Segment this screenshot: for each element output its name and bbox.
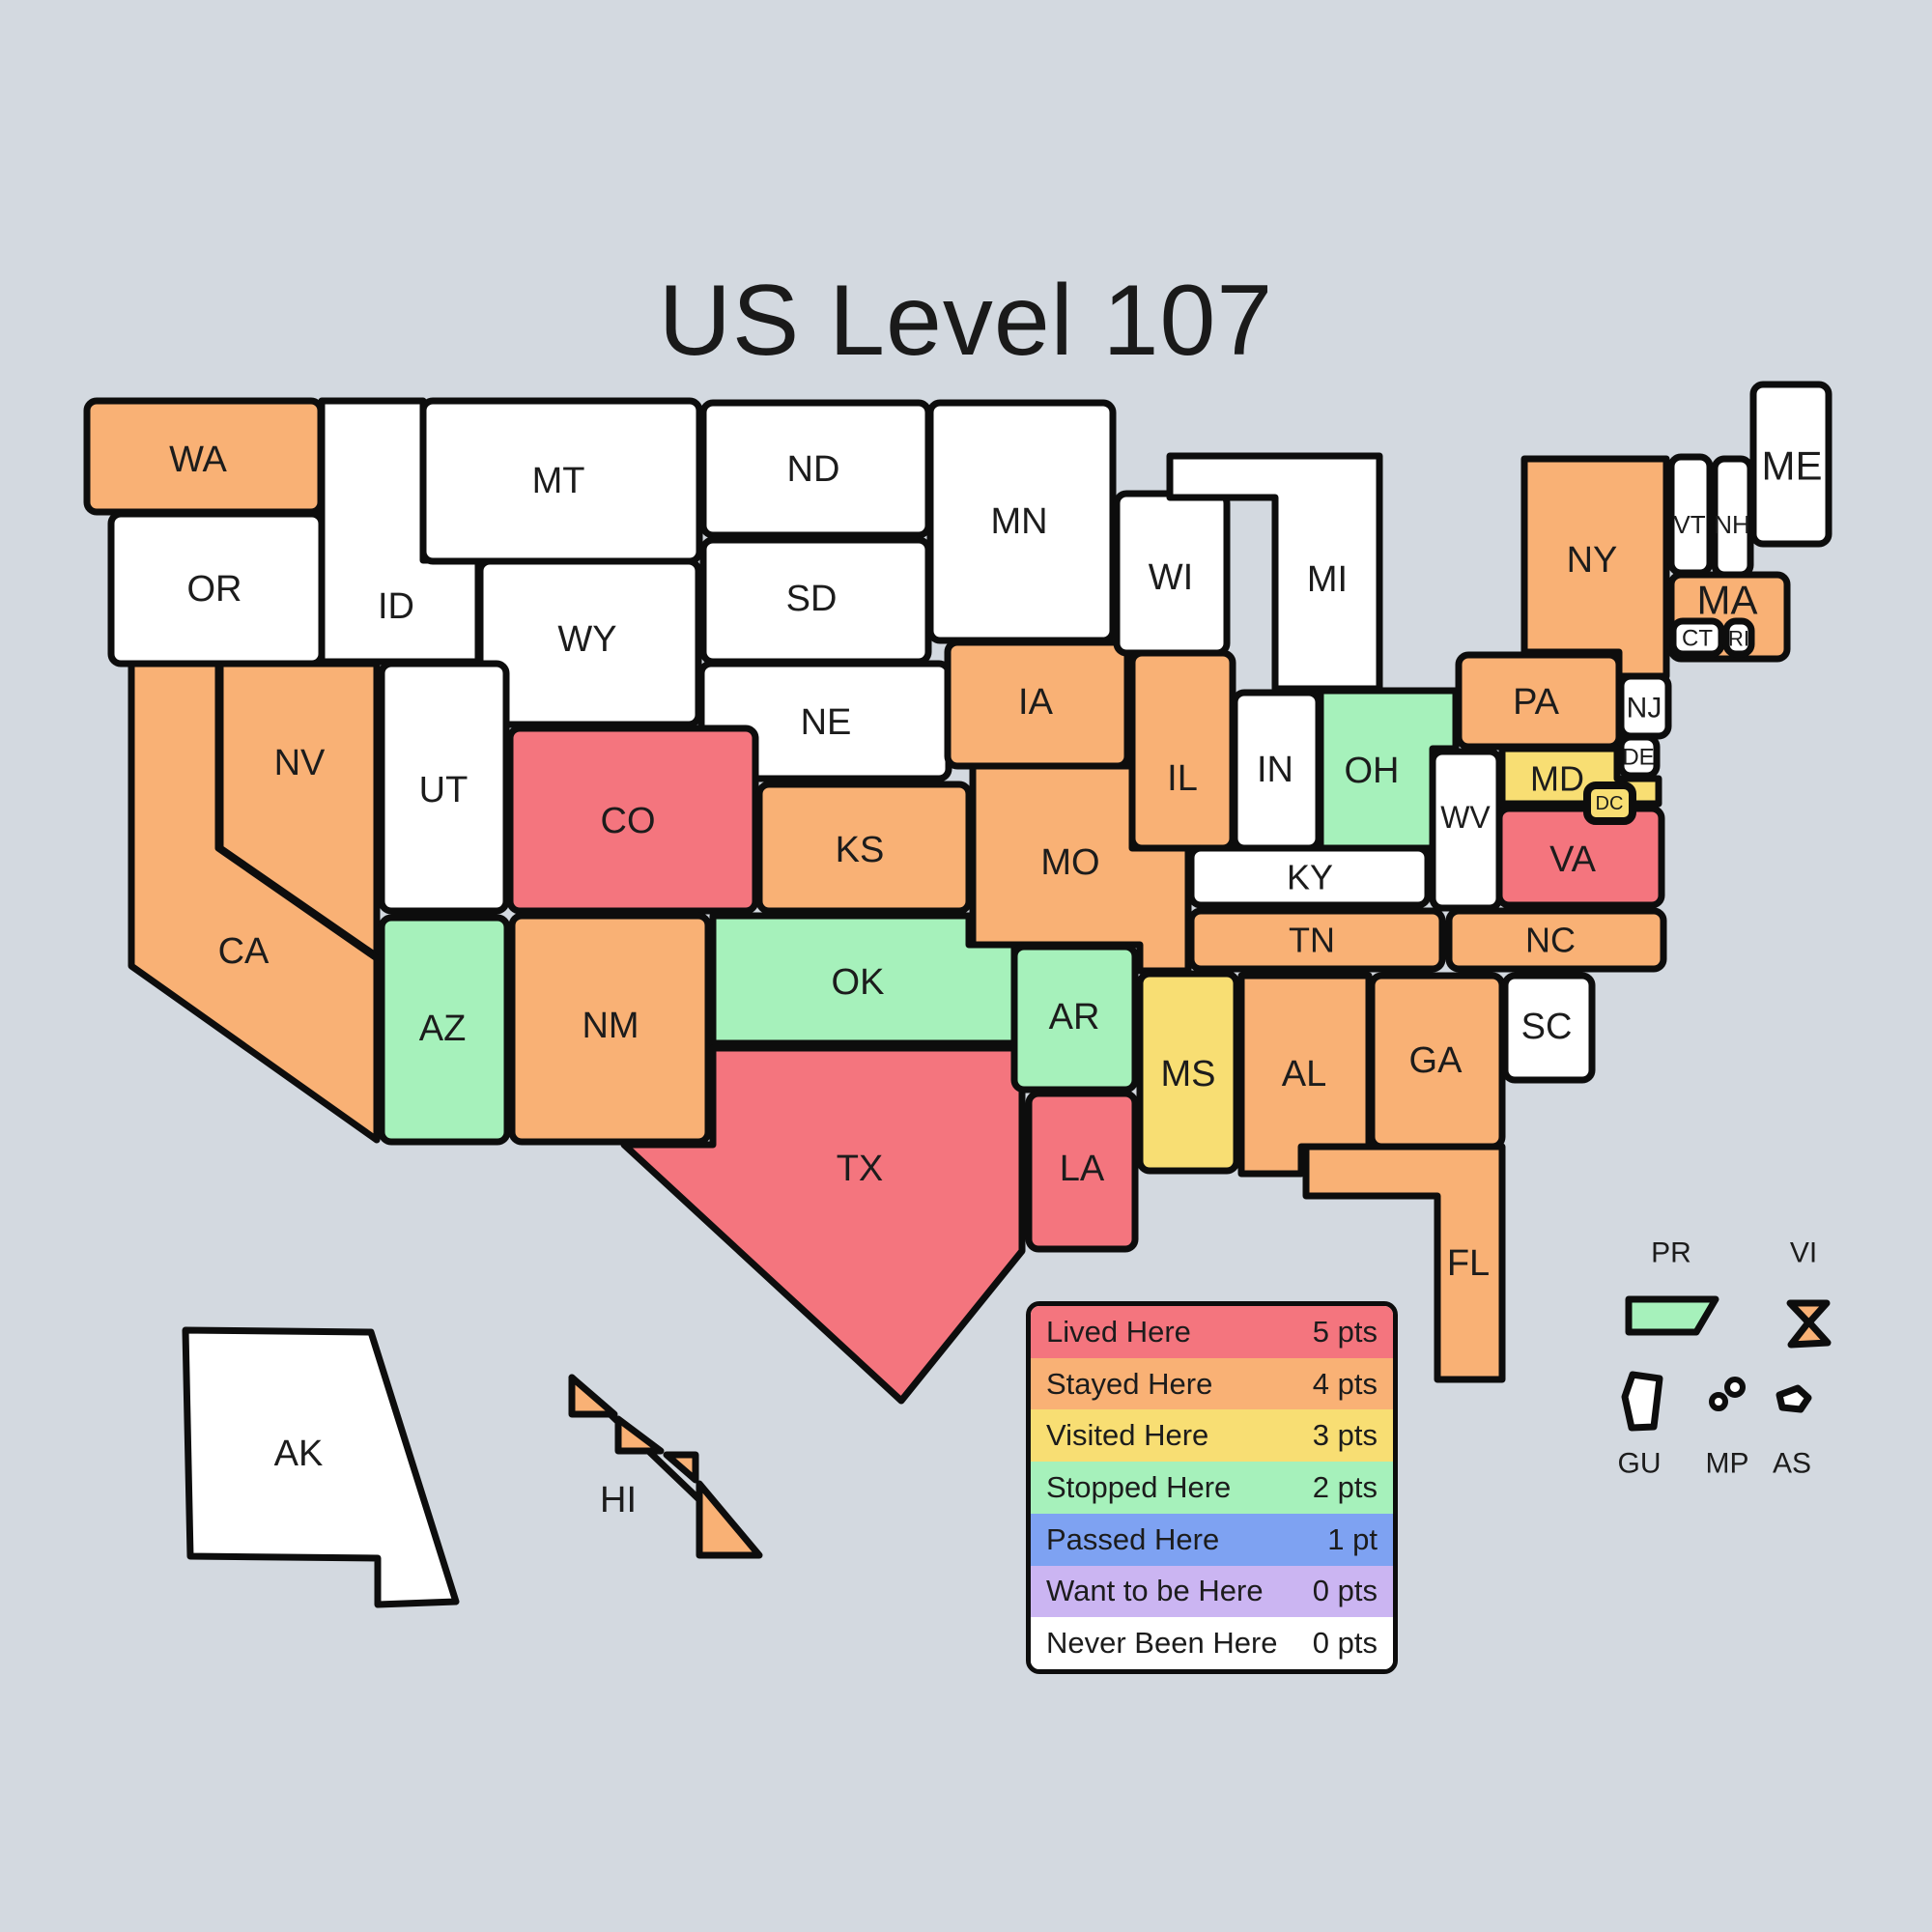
legend-row-lived: Lived Here5 pts (1031, 1306, 1393, 1358)
state-or[interactable] (111, 514, 322, 664)
state-ky[interactable] (1191, 848, 1428, 905)
legend-points: 4 pts (1313, 1367, 1378, 1402)
legend-label: Want to be Here (1046, 1574, 1264, 1608)
legend: Lived Here5 ptsStayed Here4 ptsVisited H… (1026, 1301, 1398, 1674)
legend-points: 0 pts (1313, 1574, 1378, 1608)
state-hi-label: HI (600, 1480, 637, 1520)
state-me[interactable] (1753, 384, 1829, 544)
state-hi[interactable] (572, 1378, 759, 1555)
state-tn[interactable] (1191, 911, 1442, 969)
legend-points: 5 pts (1313, 1315, 1378, 1350)
territory-pr-label: PR (1651, 1237, 1691, 1269)
state-il[interactable] (1132, 653, 1233, 848)
legend-points: 2 pts (1313, 1470, 1378, 1505)
territory-gu[interactable] (1625, 1375, 1660, 1428)
state-de[interactable] (1621, 737, 1657, 776)
state-nc[interactable] (1449, 911, 1663, 969)
legend-points: 3 pts (1313, 1418, 1378, 1453)
legend-label: Stayed Here (1046, 1367, 1212, 1402)
state-ks[interactable] (759, 784, 969, 911)
state-ia[interactable] (948, 642, 1127, 766)
state-nd[interactable] (703, 403, 928, 535)
legend-row-stayed: Stayed Here4 pts (1031, 1358, 1393, 1410)
legend-points: 1 pt (1327, 1522, 1378, 1557)
territory-mp-label: MP (1706, 1448, 1749, 1480)
legend-row-stopped: Stopped Here2 pts (1031, 1462, 1393, 1514)
state-va[interactable] (1499, 809, 1662, 905)
state-sd[interactable] (703, 540, 928, 662)
territory-vi-label: VI (1790, 1237, 1817, 1269)
page-title: US Level 107 (0, 270, 1932, 371)
legend-label: Lived Here (1046, 1315, 1191, 1350)
territory-vi[interactable] (1790, 1303, 1828, 1345)
legend-label: Passed Here (1046, 1522, 1219, 1557)
state-ak[interactable] (185, 1330, 456, 1605)
state-ga[interactable] (1372, 976, 1502, 1147)
legend-row-want: Want to be Here0 pts (1031, 1566, 1393, 1618)
state-az[interactable] (382, 918, 507, 1142)
state-nh[interactable] (1715, 459, 1750, 575)
state-ny[interactable] (1524, 459, 1666, 676)
state-in[interactable] (1235, 693, 1319, 848)
territory-as[interactable] (1779, 1388, 1808, 1409)
state-dc[interactable] (1587, 785, 1633, 821)
legend-label: Stopped Here (1046, 1470, 1231, 1505)
legend-label: Visited Here (1046, 1418, 1208, 1453)
state-la[interactable] (1029, 1094, 1135, 1249)
state-ct[interactable] (1673, 621, 1721, 654)
state-mn[interactable] (930, 403, 1113, 640)
territory-mp[interactable] (1712, 1379, 1743, 1408)
state-wy[interactable] (480, 561, 698, 724)
state-ok[interactable] (713, 916, 1014, 1043)
app-canvas: WAORIDMTNDSDWYNECOUTNVCAAZNMKSOKTXMNIAMO… (0, 0, 1932, 1932)
legend-row-visited: Visited Here3 pts (1031, 1409, 1393, 1462)
state-ri[interactable] (1726, 621, 1751, 654)
state-nj[interactable] (1621, 676, 1668, 736)
state-wa[interactable] (87, 401, 321, 512)
territory-pr[interactable] (1629, 1299, 1716, 1332)
state-pa[interactable] (1459, 655, 1619, 747)
territory-as-label: AS (1773, 1448, 1811, 1480)
legend-row-passed: Passed Here1 pt (1031, 1514, 1393, 1566)
state-nm[interactable] (512, 916, 708, 1142)
state-mt[interactable] (423, 401, 699, 561)
state-ar[interactable] (1014, 947, 1135, 1090)
legend-label: Never Been Here (1046, 1626, 1278, 1661)
state-sc[interactable] (1505, 976, 1592, 1080)
state-ut[interactable] (382, 664, 506, 911)
state-wi[interactable] (1117, 494, 1227, 653)
state-co[interactable] (510, 728, 755, 911)
legend-points: 0 pts (1313, 1626, 1378, 1661)
state-vt[interactable] (1671, 457, 1710, 573)
legend-row-never: Never Been Here0 pts (1031, 1617, 1393, 1669)
state-ms[interactable] (1140, 974, 1236, 1171)
territory-gu-label: GU (1618, 1448, 1662, 1480)
state-wv[interactable] (1433, 752, 1499, 908)
